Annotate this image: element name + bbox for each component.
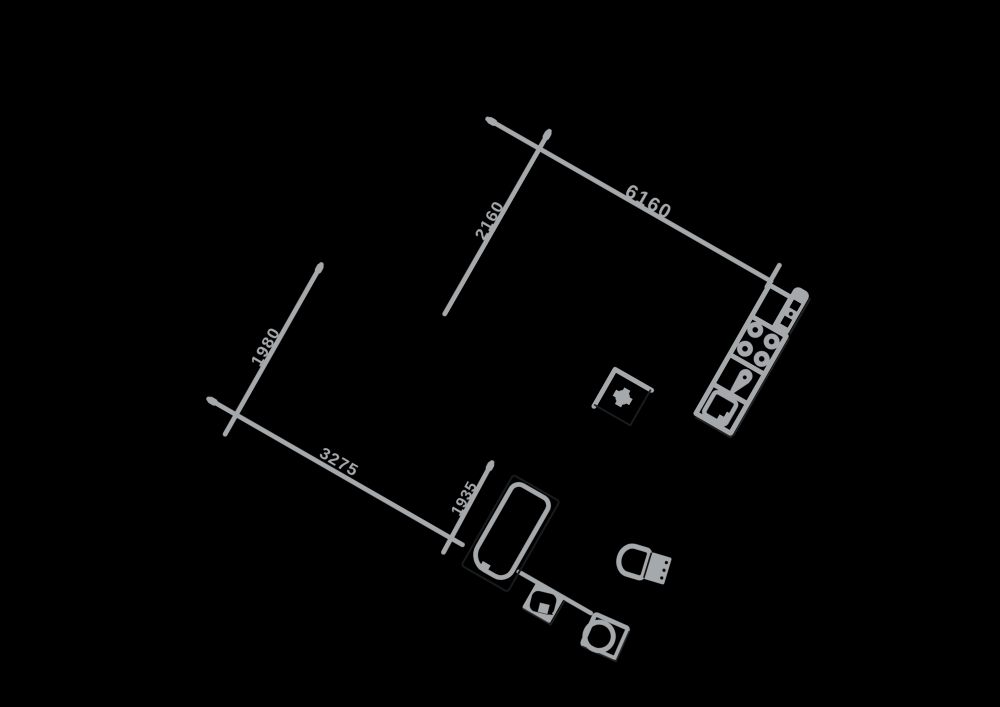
- svg-text:2160: 2160: [471, 197, 508, 243]
- svg-text:1935: 1935: [448, 479, 481, 519]
- svg-text:1980: 1980: [247, 324, 284, 370]
- svg-text:6160: 6160: [621, 180, 676, 224]
